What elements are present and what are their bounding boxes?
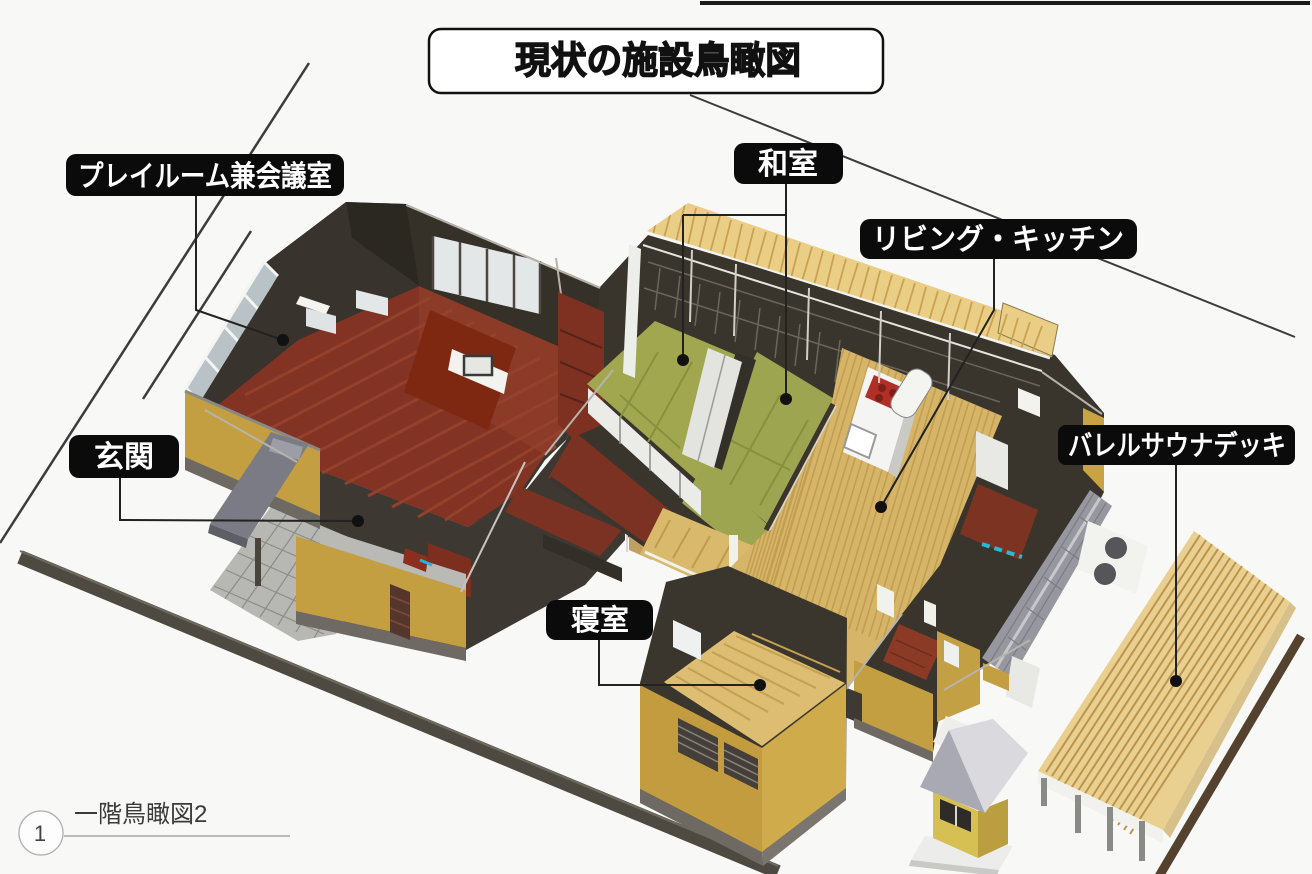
svg-text:和室: 和室 — [758, 147, 818, 181]
svg-text:リビング・キッチン: リビング・キッチン — [872, 223, 1124, 256]
svg-text:現状の施設鳥瞰図: 現状の施設鳥瞰図 — [515, 40, 801, 81]
svg-text:バレルサウナデッキ: バレルサウナデッキ — [1068, 429, 1286, 461]
svg-text:プレイルーム兼会議室: プレイルーム兼会議室 — [78, 159, 332, 193]
svg-text:玄関: 玄関 — [94, 440, 154, 474]
svg-text:寝室: 寝室 — [571, 603, 629, 637]
svg-text:1: 1 — [34, 821, 46, 846]
svg-text:一階鳥瞰図2: 一階鳥瞰図2 — [74, 801, 207, 828]
